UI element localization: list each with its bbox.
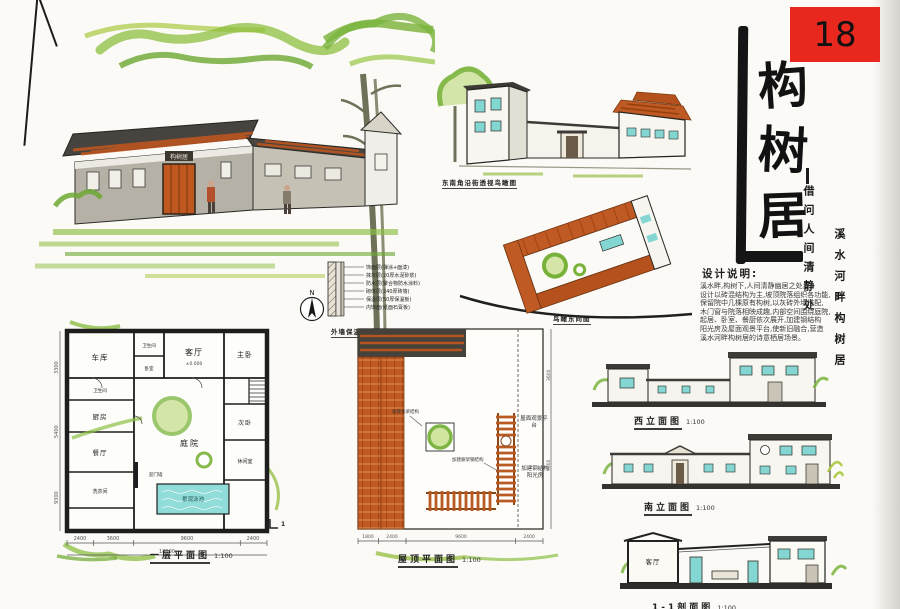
design-notes-line: 溪水河畔构树居的诗意栖居场景。	[700, 334, 880, 343]
sheet-number: 18	[813, 15, 856, 55]
roof-plan-caption: 屋顶平面图1:100	[398, 547, 481, 566]
door-sign-text: 构树居	[170, 153, 188, 161]
dim-text: 2400	[523, 534, 535, 540]
room-label: 次卧	[238, 419, 252, 427]
wall-layer-note: 砌体层(240厚砖墙)	[366, 288, 409, 295]
wall-layer-note: 保温层(50厚保温板)	[366, 296, 411, 303]
room-label: 客厅	[185, 347, 203, 357]
dim-text: 1800	[362, 534, 374, 540]
dim-text: 5400	[54, 425, 60, 438]
street-perspective-caption: 东南角沿街透视鸟瞰图	[442, 170, 517, 189]
section-mark: 1	[281, 521, 285, 528]
room-label: 厨房	[93, 412, 108, 421]
presentation-board: 构树居	[0, 0, 900, 609]
window	[375, 154, 387, 170]
room-label: 庭院	[180, 438, 200, 448]
person-figure	[207, 181, 215, 214]
section-room-label: 客厅	[646, 557, 661, 566]
design-notes-line: 溪水畔,构树下,人间清静幽居之处。	[700, 282, 880, 291]
roof-note: 加建木梁结构	[392, 408, 419, 415]
dim-text: 3600	[546, 369, 552, 381]
wall-layer-note: 防水层(聚合物防水涂料)	[366, 280, 420, 287]
floor-plan-caption: 一层平面图1:100	[150, 543, 233, 562]
room-label: 餐厅	[93, 448, 108, 457]
wall-detail-drawing: 饰面层(弹涂+面漆) 抹灰层(20厚水泥砂浆) 防水层(聚合物防水涂料) 砌体层…	[322, 260, 444, 318]
dim-text: 3600	[107, 536, 120, 542]
south-elevation-caption: 南立面图1:100	[644, 495, 715, 514]
design-notes-line: 起居、卧室、餐厨依次展开,加建钢结构	[700, 316, 880, 325]
dim-text: 2400	[386, 534, 398, 540]
level-mark: ±0.000	[186, 361, 203, 367]
room-label: 车库	[92, 352, 109, 362]
dim-text: 2400	[74, 536, 87, 542]
roof-note: 加建廊架钢结构	[452, 456, 484, 463]
wall-layer-note: 饰面层(弹涂+面漆)	[366, 264, 409, 271]
axonometric-drawing	[452, 190, 707, 322]
design-notes: 溪水畔,构树下,人间清静幽居之处。 设计以砖混结构为主,坡顶院落组织各功能, 保…	[700, 282, 880, 342]
dim-text: 3300	[54, 361, 60, 374]
south-elevation-drawing	[600, 426, 844, 498]
roof-note-sunroom: 加建钢结构阳光房	[521, 466, 549, 479]
room-label: 主卧	[237, 350, 253, 359]
room-label: 卧室	[145, 365, 154, 372]
room-label: 卫生间	[93, 387, 107, 394]
north-label: N	[309, 289, 314, 297]
section-caption: 1-1剖面图1:100	[652, 595, 736, 609]
dim-text: 2400	[247, 536, 260, 542]
roof-note-deck: 屋面观景平台	[520, 416, 548, 429]
wall-layer-note: 内饰面(纸面石膏板)	[366, 304, 410, 311]
calligraphy-bracket	[736, 26, 748, 264]
west-elevation-drawing	[590, 346, 832, 412]
section-drawing: 客厅	[620, 531, 852, 599]
title-char: 构	[756, 56, 810, 115]
roof-plan-drawing: 加建木梁结构 加建廊架钢结构 1800 2400 9600 2400 3600 …	[346, 321, 561, 566]
room-label: 迎门墙	[149, 471, 163, 478]
dim-text: 9300	[54, 491, 60, 504]
dim-text: 9600	[455, 534, 467, 540]
dim-text: 9600	[181, 536, 194, 542]
wall-layer-note: 抹灰层(20厚水泥砂浆)	[366, 272, 416, 279]
floor-plan-drawing: 车库 卫生间 卧室 客厅 ±0.000 主卧 卫生间 厨房 餐厅 洗衣间 庭院 …	[52, 316, 302, 566]
design-notes-line: 保留院中几棵原有构树,以灰砖外墙搭配,	[700, 299, 880, 308]
room-label: 卫生间	[142, 342, 156, 349]
calligraphy-bracket	[737, 251, 803, 262]
room-label: 休闲室	[237, 458, 252, 465]
title-char: 树	[757, 122, 810, 181]
design-notes-heading: 设计说明:	[702, 266, 758, 281]
design-notes-line: 设计以砖混结构为主,坡顶院落组织各功能,	[700, 291, 880, 300]
room-label: 洗衣间	[92, 488, 107, 495]
street-perspective-drawing	[423, 48, 708, 183]
title-dash	[806, 168, 809, 184]
room-label: 景观泳池	[182, 495, 205, 503]
design-notes-line: 阳光房及屋面观景平台,使新旧融合,营造	[700, 325, 880, 334]
